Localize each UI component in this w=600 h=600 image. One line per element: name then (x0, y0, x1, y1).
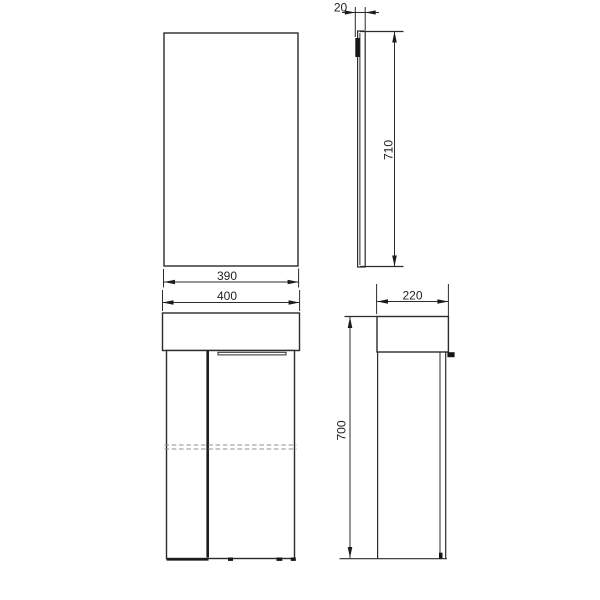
cabinet-foot-mark-1 (228, 558, 233, 561)
arrowhead-right (289, 300, 300, 305)
dimension-cabinet-height: 700 (335, 317, 353, 558)
cabinet-countertop-side (377, 317, 448, 353)
cabinet-countertop-front (163, 313, 300, 351)
dimension-cabinet-width: 400 (163, 289, 300, 311)
mirror-side-panel-outline (358, 31, 366, 267)
technical-drawing-canvas: 390 20 710 400 (0, 0, 600, 600)
arrowhead-right (288, 280, 299, 285)
arrowhead-down (392, 256, 397, 267)
dim-mirror-height-label: 710 (382, 140, 396, 160)
cabinet-foot-side (439, 553, 443, 559)
cabinet-body-front (167, 351, 295, 559)
cabinet-foot-mark-3 (291, 558, 296, 561)
arrowhead-up (392, 32, 397, 43)
dim-cabinet-width-label: 400 (217, 289, 237, 303)
mirror-mounting-bracket (355, 38, 359, 57)
arrowhead-left (164, 280, 175, 285)
mirror-front-outline (164, 33, 298, 266)
mirror-side-view: 20 710 (334, 1, 404, 268)
arrowhead-down (348, 547, 353, 558)
dim-mirror-width-label: 390 (217, 269, 237, 283)
cabinet-foot-mark-2 (277, 558, 283, 561)
arrowhead-left (163, 300, 174, 305)
dim-cabinet-depth-label: 220 (402, 289, 422, 303)
dimension-mirror-width: 390 (164, 269, 299, 288)
dimension-mirror-height: 710 (382, 32, 397, 267)
arrowhead-up (348, 317, 353, 328)
arrowhead-right (437, 299, 448, 304)
cabinet-side-view: 220 700 (335, 284, 455, 559)
cabinet-handle-front (218, 352, 286, 355)
cabinet-handle-side (447, 352, 454, 357)
dim-cabinet-height-label: 700 (335, 420, 349, 440)
arrowhead-inward-right (345, 10, 356, 14)
mirror-front-view: 390 (164, 33, 299, 288)
arrowhead-inward-left (365, 10, 376, 14)
technical-drawing-page: 390 20 710 400 (0, 0, 600, 600)
cabinet-front-view: 400 (163, 289, 300, 561)
arrowhead-left (377, 299, 388, 304)
